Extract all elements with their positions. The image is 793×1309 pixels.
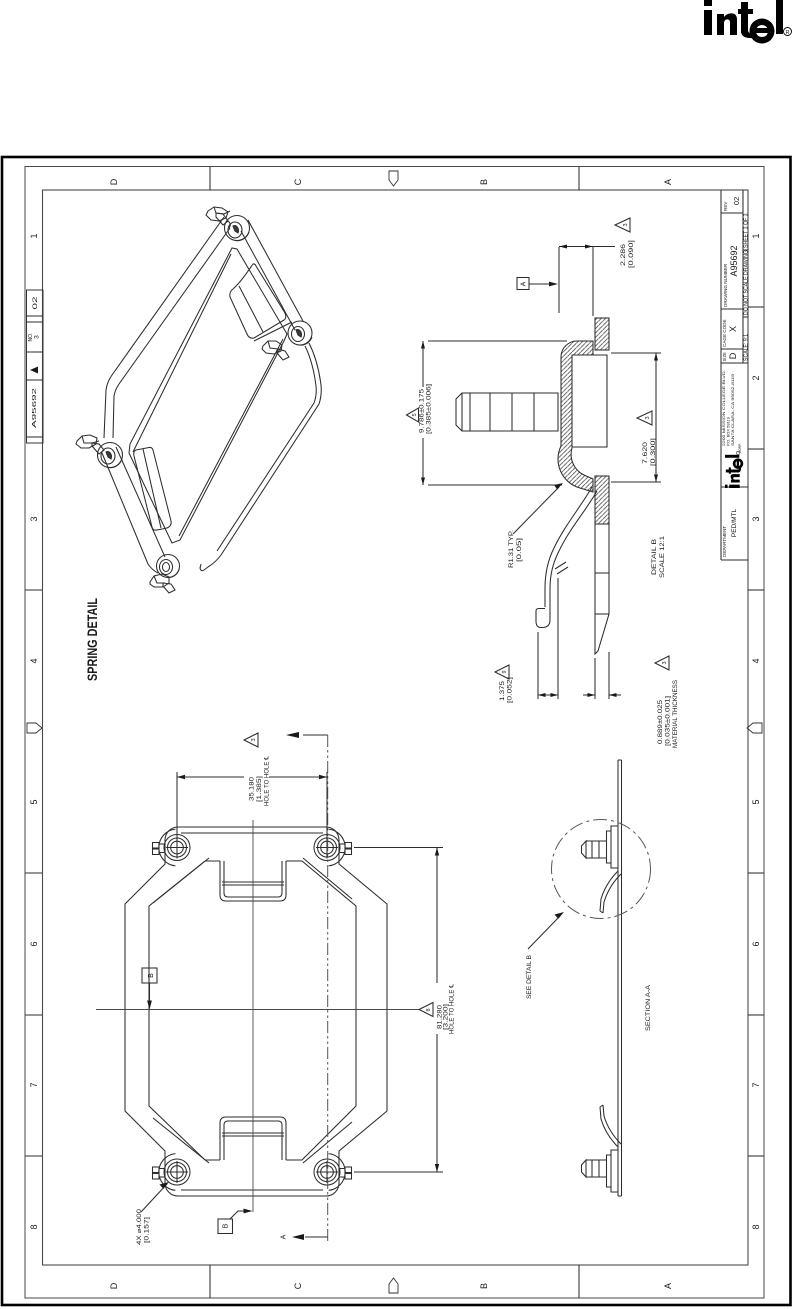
- svg-text:A: A: [663, 179, 673, 185]
- svg-text:B: B: [148, 973, 155, 978]
- svg-text:PED/MTL: PED/MTL: [731, 509, 738, 538]
- svg-text:[0.300]: [0.300]: [650, 438, 657, 466]
- svg-text:B: B: [223, 1223, 230, 1228]
- svg-text:1: 1: [29, 233, 39, 238]
- svg-text:A95692: A95692: [32, 388, 38, 428]
- svg-text:2.286: 2.286: [620, 243, 627, 266]
- svg-text:R1.31 TYP.: R1.31 TYP.: [508, 530, 515, 568]
- svg-text:4X ⌀4.000: 4X ⌀4.000: [136, 1208, 143, 1245]
- svg-text:REV: REV: [723, 201, 728, 211]
- svg-text:3: 3: [34, 335, 41, 339]
- svg-text:DETAIL B: DETAIL B: [651, 539, 658, 575]
- svg-text:HOLE TO HOLE ℄: HOLE TO HOLE ℄: [264, 756, 271, 806]
- svg-text:5: 5: [29, 799, 39, 804]
- svg-text:A95692: A95692: [729, 245, 739, 276]
- svg-text:DRAWING NUMBER: DRAWING NUMBER: [723, 263, 728, 307]
- svg-text:3: 3: [29, 516, 39, 521]
- svg-text:D: D: [109, 1282, 119, 1289]
- svg-text:7.620: 7.620: [642, 441, 649, 464]
- svg-text:3: 3: [645, 416, 651, 419]
- svg-text:6: 6: [29, 941, 39, 946]
- svg-text:HOLE TO HOLE ℄: HOLE TO HOLE ℄: [449, 984, 456, 1034]
- svg-text:[1.385]: [1.385]: [256, 776, 263, 802]
- svg-text:D: D: [109, 178, 119, 185]
- svg-text:B: B: [479, 1283, 489, 1289]
- svg-text:[0.157]: [0.157]: [144, 1217, 151, 1243]
- svg-text:8: 8: [751, 1224, 761, 1229]
- svg-text:[0.035±0.001]: [0.035±0.001]: [665, 696, 672, 746]
- svg-text:3: 3: [251, 738, 257, 741]
- svg-text:SEE DETAIL B: SEE DETAIL B: [526, 955, 533, 999]
- svg-text:SIZE: SIZE: [722, 352, 727, 362]
- svg-text:SECTION A-A: SECTION A-A: [645, 984, 652, 1031]
- svg-text:7: 7: [29, 1082, 39, 1087]
- svg-text:4: 4: [29, 658, 39, 663]
- svg-text:7: 7: [751, 1082, 761, 1087]
- svg-text:SPRING DETAIL: SPRING DETAIL: [84, 598, 100, 681]
- svg-text:A: A: [281, 1234, 288, 1239]
- svg-text:[0.052]: [0.052]: [507, 677, 514, 703]
- svg-text:3: 3: [662, 661, 668, 664]
- svg-text:1: 1: [751, 233, 761, 238]
- svg-text:A: A: [663, 1283, 673, 1289]
- svg-text:C: C: [293, 178, 303, 185]
- svg-text:[0.05]: [0.05]: [516, 538, 523, 562]
- svg-text:D: D: [728, 352, 738, 359]
- svg-text:9.786±0.175: 9.786±0.175: [419, 388, 426, 433]
- svg-text:0.889±0.025: 0.889±0.025: [657, 699, 664, 744]
- svg-text:SCALE 12:1: SCALE 12:1: [659, 535, 666, 578]
- svg-text:A: A: [521, 281, 528, 286]
- svg-text:3: 3: [623, 223, 629, 226]
- svg-text:R: R: [786, 30, 790, 36]
- svg-text:[0.090]: [0.090]: [628, 240, 635, 268]
- svg-text:SCALE: 9:1: SCALE: 9:1: [744, 334, 750, 361]
- svg-text:C: C: [293, 1282, 303, 1289]
- svg-text:5: 5: [751, 799, 761, 804]
- svg-text:02: 02: [732, 197, 741, 205]
- svg-text:MATERIAL THICKNESS: MATERIAL THICKNESS: [672, 680, 679, 748]
- svg-text:3: 3: [751, 516, 761, 521]
- svg-text:SHEET 3 OF 3: SHEET 3 OF 3: [744, 213, 750, 248]
- svg-text:X: X: [728, 326, 738, 332]
- svg-text:6: 6: [751, 941, 761, 946]
- svg-text:2: 2: [751, 375, 761, 380]
- svg-text:4: 4: [751, 658, 761, 663]
- svg-text:DEPARTMENT: DEPARTMENT: [722, 526, 727, 557]
- svg-text:8: 8: [426, 1008, 432, 1011]
- svg-text:02: 02: [32, 296, 39, 310]
- svg-text:1.375: 1.375: [499, 680, 506, 701]
- svg-text:CORP.: CORP.: [738, 443, 742, 453]
- svg-text:5: 5: [412, 413, 418, 416]
- svg-text:B: B: [479, 179, 489, 185]
- svg-text:[0.385±0.006]: [0.385±0.006]: [426, 384, 433, 434]
- svg-text:SANTA CLARA, CA 95052-8119: SANTA CLARA, CA 95052-8119: [730, 373, 735, 446]
- svg-text:CAGE CODE: CAGE CODE: [722, 319, 727, 347]
- svg-text:DO NOT SCALE DRAWING: DO NOT SCALE DRAWING: [744, 250, 750, 315]
- svg-text:35.180: 35.180: [249, 776, 256, 801]
- svg-text:9: 9: [502, 670, 508, 673]
- svg-text:8: 8: [29, 1224, 39, 1229]
